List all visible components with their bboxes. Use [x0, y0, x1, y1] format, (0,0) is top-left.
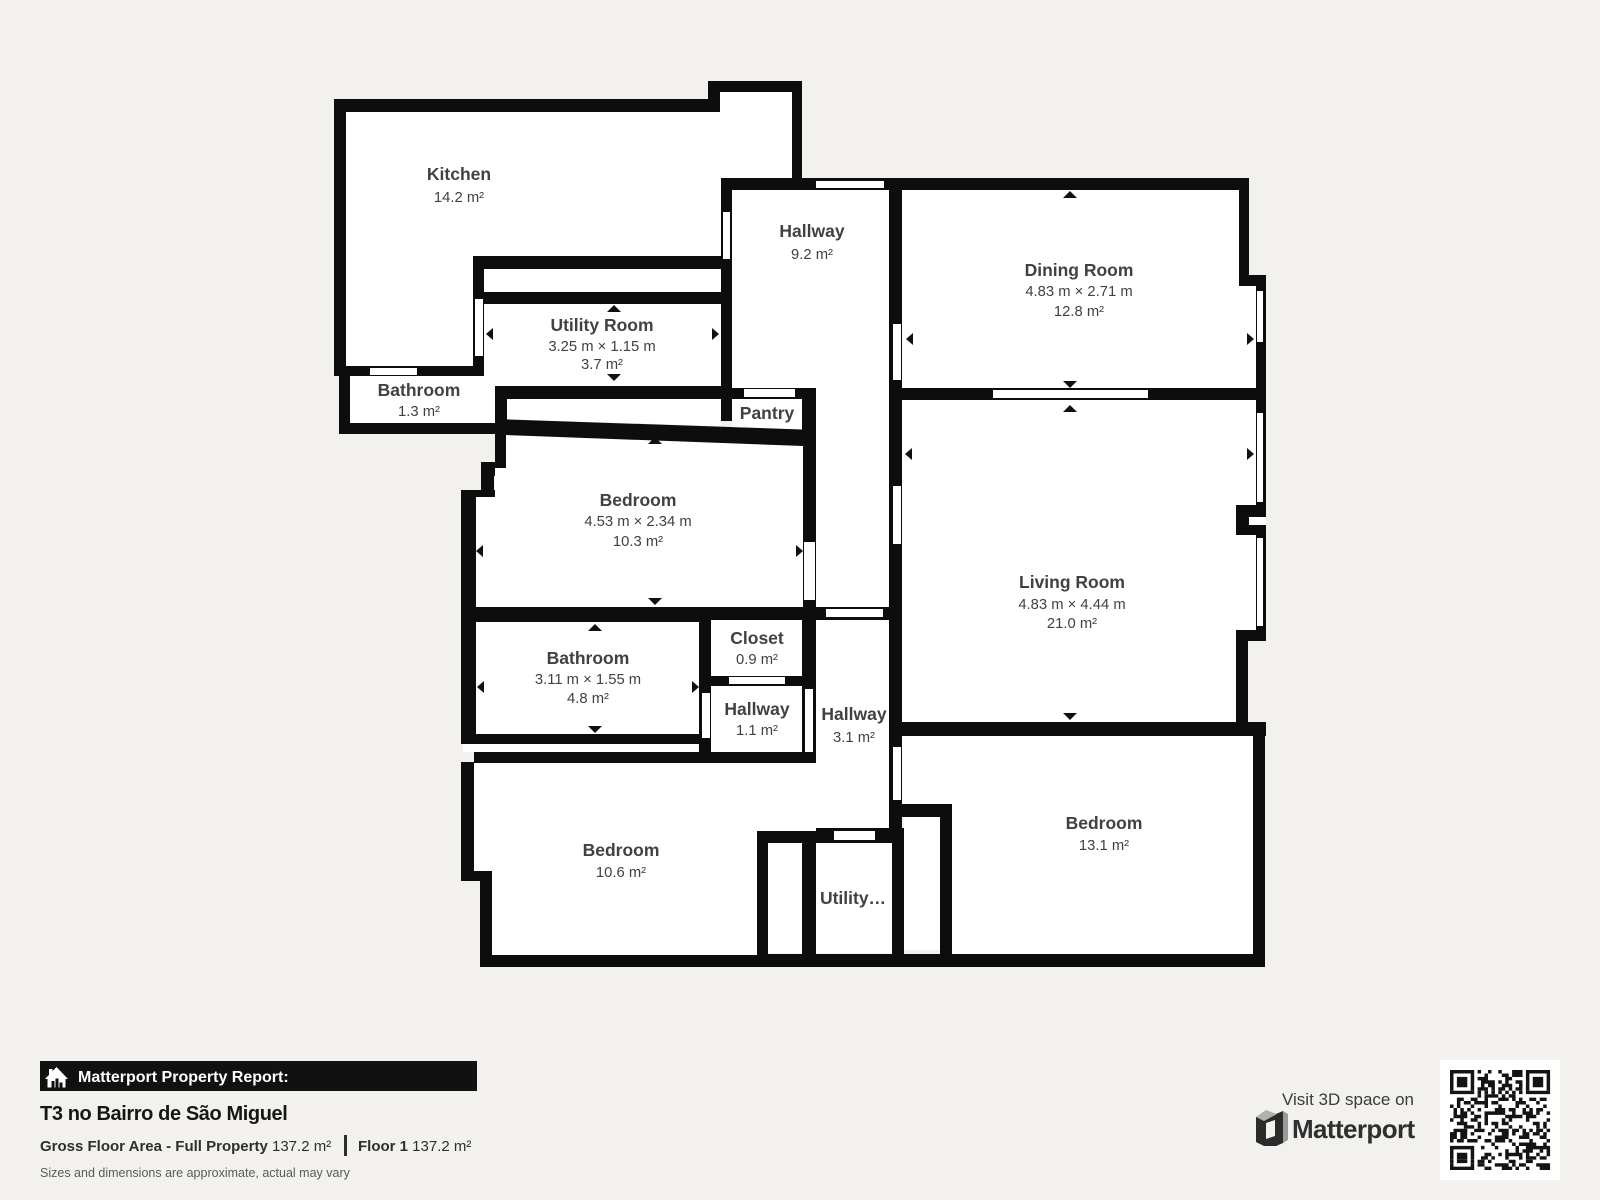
- svg-text:13.1 m²: 13.1 m²: [1079, 838, 1129, 854]
- svg-text:4.8 m²: 4.8 m²: [567, 691, 609, 707]
- svg-text:Pantry: Pantry: [740, 403, 795, 423]
- svg-text:3.7 m²: 3.7 m²: [581, 357, 623, 373]
- svg-text:12.8 m²: 12.8 m²: [1054, 304, 1104, 320]
- svg-text:4.83 m × 2.71 m: 4.83 m × 2.71 m: [1025, 284, 1132, 300]
- svg-text:Gross Floor Area - Full Proper: Gross Floor Area - Full Property 137.2 m…: [40, 1138, 331, 1155]
- svg-text:Kitchen: Kitchen: [427, 164, 491, 184]
- svg-text:Closet: Closet: [730, 628, 784, 648]
- svg-text:10.3 m²: 10.3 m²: [613, 534, 663, 550]
- svg-text:9.2 m²: 9.2 m²: [791, 247, 833, 263]
- svg-text:21.0 m²: 21.0 m²: [1047, 616, 1097, 632]
- svg-text:Floor 1 137.2 m²: Floor 1 137.2 m²: [358, 1138, 471, 1155]
- svg-text:Bathroom: Bathroom: [547, 648, 630, 668]
- svg-text:Bathroom: Bathroom: [378, 380, 461, 400]
- svg-text:4.83 m × 4.44 m: 4.83 m × 4.44 m: [1018, 597, 1125, 613]
- svg-text:Bedroom: Bedroom: [583, 840, 660, 860]
- svg-text:T3 no Bairro de São Miguel: T3 no Bairro de São Miguel: [40, 1103, 287, 1125]
- svg-text:4.53 m × 2.34 m: 4.53 m × 2.34 m: [584, 514, 691, 530]
- svg-text:Living Room: Living Room: [1019, 572, 1125, 592]
- svg-text:Bedroom: Bedroom: [1066, 813, 1143, 833]
- svg-text:3.1 m²: 3.1 m²: [833, 730, 875, 746]
- svg-text:Visit 3D space on: Visit 3D space on: [1282, 1090, 1414, 1109]
- svg-text:Bedroom: Bedroom: [600, 490, 677, 510]
- svg-text:Hallway: Hallway: [724, 699, 789, 719]
- svg-text:10.6 m²: 10.6 m²: [596, 865, 646, 881]
- svg-text:Utility Room: Utility Room: [550, 315, 653, 335]
- svg-text:3.11 m × 1.55 m: 3.11 m × 1.55 m: [535, 672, 641, 688]
- svg-text:Hallway: Hallway: [779, 221, 844, 241]
- svg-text:1.3 m²: 1.3 m²: [398, 404, 440, 420]
- svg-text:0.9 m²: 0.9 m²: [736, 652, 778, 668]
- svg-text:14.2 m²: 14.2 m²: [434, 190, 484, 206]
- svg-text:1.1 m²: 1.1 m²: [736, 723, 778, 739]
- svg-text:3.25 m × 1.15 m: 3.25 m × 1.15 m: [548, 339, 655, 355]
- svg-text:Sizes and dimensions are appro: Sizes and dimensions are approximate, ac…: [40, 1166, 351, 1180]
- svg-text:Utility…: Utility…: [820, 888, 886, 908]
- svg-text:Hallway: Hallway: [821, 704, 886, 724]
- svg-text:Matterport: Matterport: [1292, 1114, 1415, 1144]
- svg-text:Matterport Property Report:: Matterport Property Report:: [78, 1069, 289, 1086]
- svg-text:Dining Room: Dining Room: [1025, 260, 1134, 280]
